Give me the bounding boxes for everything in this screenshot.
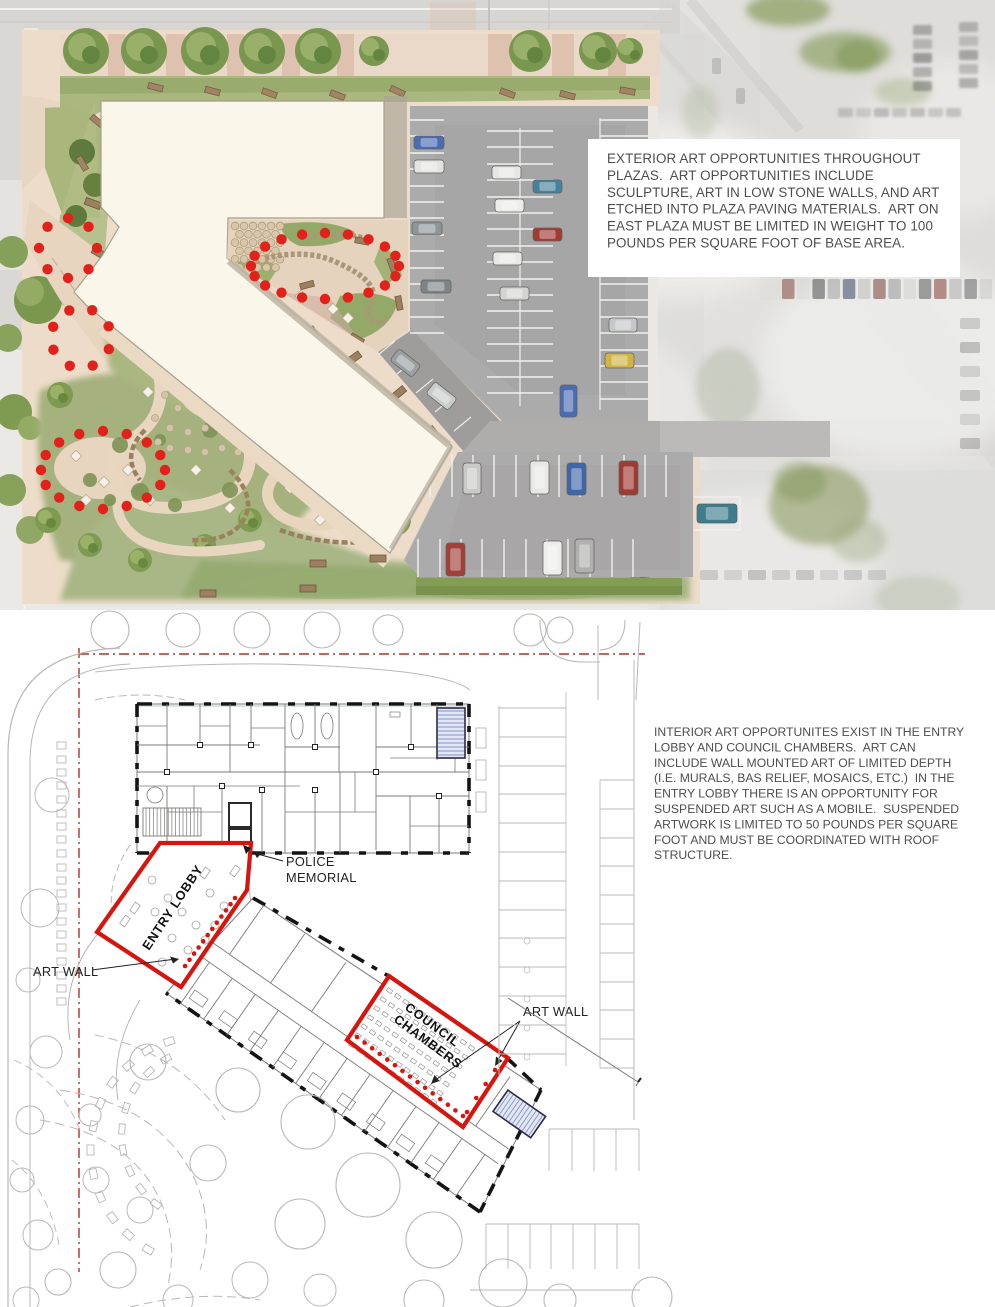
svg-text:POLICE: POLICE xyxy=(286,854,335,869)
svg-text:SCULPTURE, ART IN LOW STONE WA: SCULPTURE, ART IN LOW STONE WALLS, AND A… xyxy=(607,185,939,200)
svg-text:STRUCTURE.: STRUCTURE. xyxy=(654,848,733,862)
svg-text:ARTWORK IS LIMITED TO 50 POUND: ARTWORK IS LIMITED TO 50 POUNDS PER SQUA… xyxy=(654,817,958,831)
svg-text:MEMORIAL: MEMORIAL xyxy=(286,870,357,885)
svg-text:POUNDS PER SQUARE FOOT OF BASE: POUNDS PER SQUARE FOOT OF BASE AREA. xyxy=(607,236,905,251)
svg-text:INCLUDE WALL MOUNTED ART OF LI: INCLUDE WALL MOUNTED ART OF LIMITED DEPT… xyxy=(654,756,951,770)
svg-text:EXTERIOR ART OPPORTUNITIES THR: EXTERIOR ART OPPORTUNITIES THROUGHOUT xyxy=(607,151,921,166)
svg-text:ENTRY LOBBY THERE IS AN OPPORT: ENTRY LOBBY THERE IS AN OPPORTUNITY FOR xyxy=(654,787,938,801)
svg-text:LOBBY AND COUNCIL CHAMBERS. A: LOBBY AND COUNCIL CHAMBERS. ART CAN xyxy=(654,740,916,754)
svg-text:EAST PLAZA MUST BE LIMITED IN: EAST PLAZA MUST BE LIMITED IN WEIGHT TO … xyxy=(607,219,933,234)
svg-text:ETCHED INTO PLAZA PAVING MATER: ETCHED INTO PLAZA PAVING MATERIALS. ART … xyxy=(607,202,939,217)
svg-text:INTERIOR ART OPPORTUNITES EXIS: INTERIOR ART OPPORTUNITES EXIST IN THE E… xyxy=(654,725,964,739)
svg-text:ART WALL: ART WALL xyxy=(33,964,98,979)
svg-text:FOOT AND MUST BE COORDINATED W: FOOT AND MUST BE COORDINATED WITH ROOF xyxy=(654,833,939,847)
svg-text:ART WALL: ART WALL xyxy=(523,1004,588,1019)
svg-text:SUSPENDED ART SUCH AS A MOBILE: SUSPENDED ART SUCH AS A MOBILE. SUSPENDE… xyxy=(654,802,959,816)
svg-text:(I.E. MURALS, BAS RELIEF, MOSA: (I.E. MURALS, BAS RELIEF, MOSAICS, ETC.)… xyxy=(654,771,954,785)
svg-text:PLAZAS. ART OPPORTUNITIES INC: PLAZAS. ART OPPORTUNITIES INCLUDE xyxy=(607,168,874,183)
